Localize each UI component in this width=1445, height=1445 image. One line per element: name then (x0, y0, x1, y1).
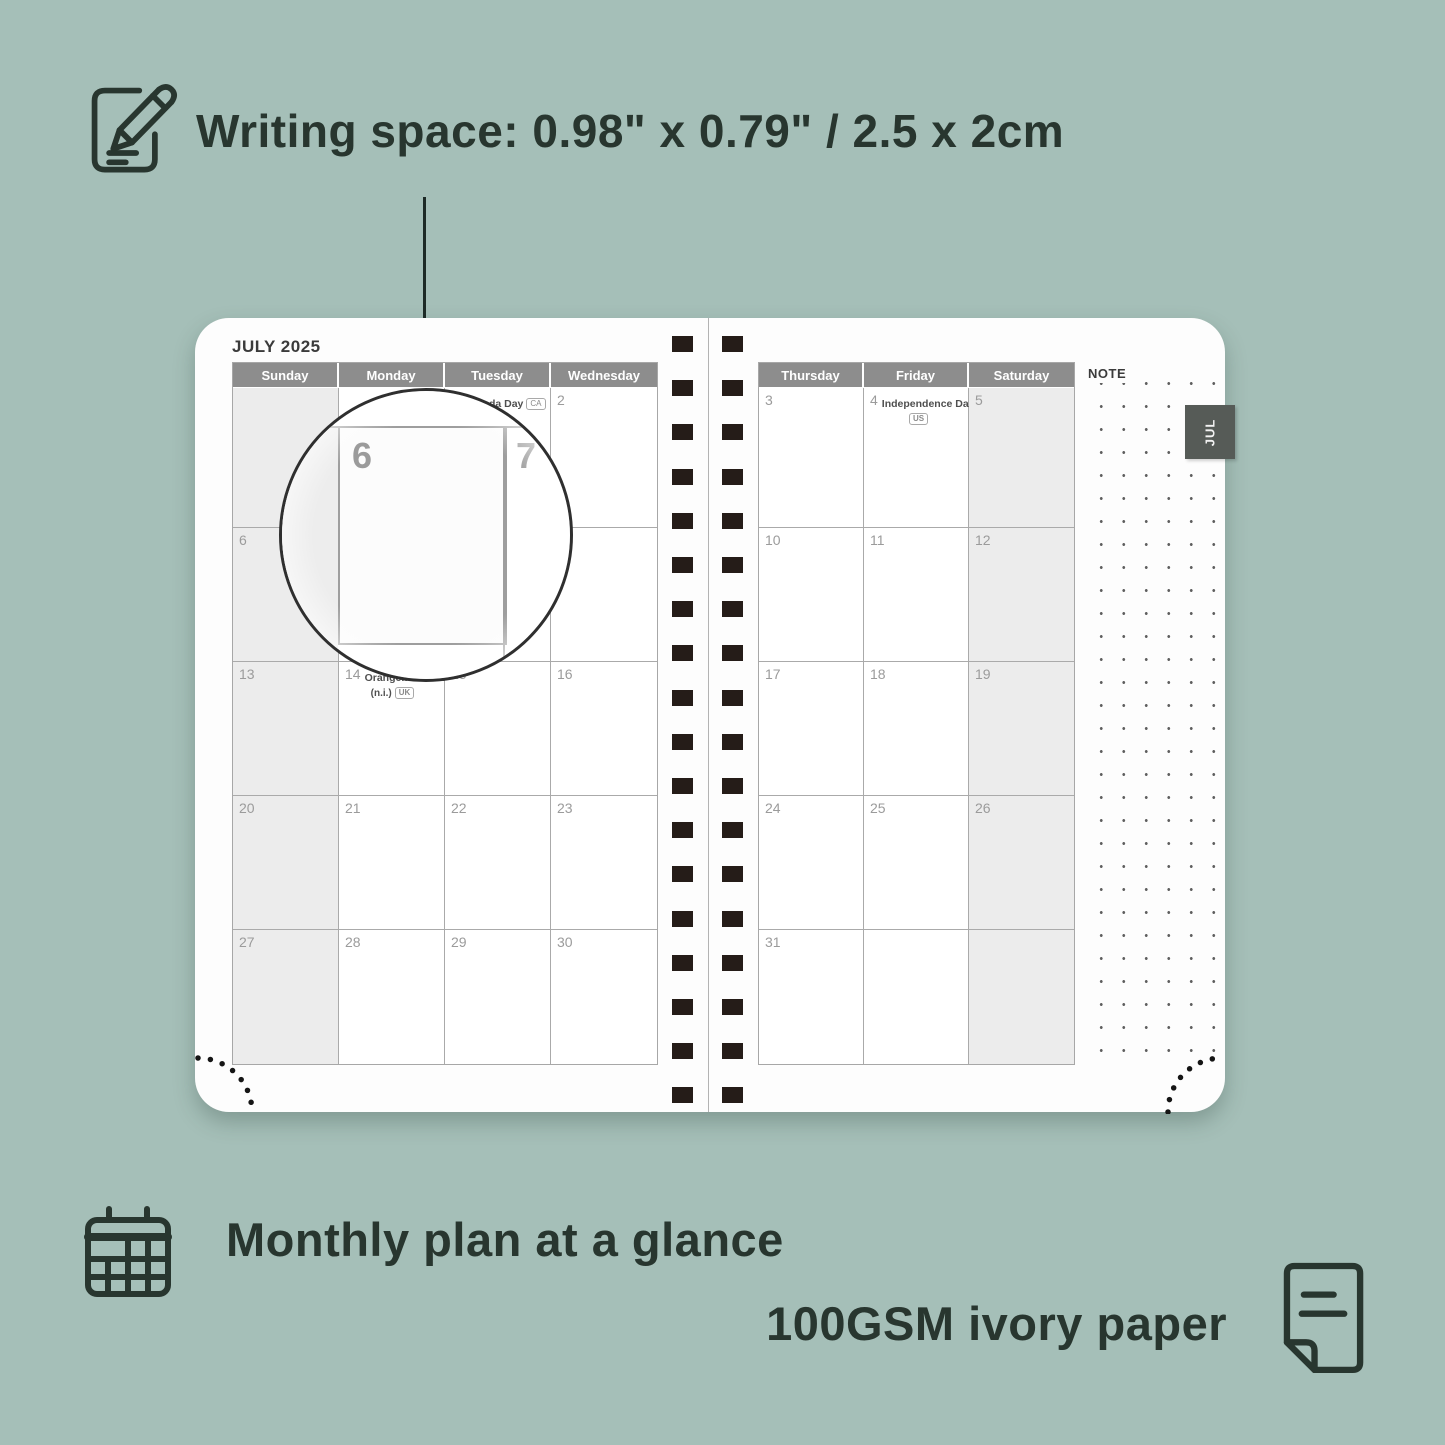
date-number: 14 (345, 666, 361, 682)
holiday-badge-line: US (870, 413, 964, 425)
calendar-cell: 14Orangemen's Day(n.i.)UK (339, 662, 445, 796)
date-number: 10 (765, 532, 781, 548)
writing-space-text: Writing space: 0.98" x 0.79" / 2.5 x 2cm (196, 104, 1064, 158)
planner-spread: JULY 2025 SundayMondayTuesdayWednesday1C… (195, 318, 1225, 1112)
binding-hole (722, 557, 743, 573)
magnifier-circle: 6 7 (279, 388, 573, 682)
date-number: 24 (765, 800, 781, 816)
month-tab-jul: JUL (1185, 405, 1235, 459)
paper-sheet-icon (1270, 1258, 1376, 1380)
month-tab-label: JUL (1203, 418, 1218, 446)
month-title: JULY 2025 (232, 337, 321, 357)
calendar-cell: 3 (759, 388, 864, 528)
calendar-cell: 22 (445, 796, 551, 930)
calendar-cell: 12 (969, 528, 1074, 662)
calendar-cell: 29 (445, 930, 551, 1064)
binding-hole (672, 424, 693, 440)
binding-hole (722, 822, 743, 838)
binding-hole (722, 1087, 743, 1103)
binding-hole (672, 734, 693, 750)
magnifier-glow (282, 391, 570, 679)
calendar-cell: 16 (551, 662, 657, 796)
day-header: Tuesday (445, 363, 551, 388)
calendar-cell: 13 (233, 662, 339, 796)
binding-hole (672, 911, 693, 927)
day-header: Thursday (759, 363, 864, 388)
country-badge: UK (395, 687, 415, 699)
binding-hole (722, 734, 743, 750)
paper-spec-text: 100GSM ivory paper (766, 1296, 1227, 1351)
calendar-cell: 26 (969, 796, 1074, 930)
product-infographic: Writing space: 0.98" x 0.79" / 2.5 x 2cm… (0, 0, 1445, 1445)
calendar-cell: 4Independence DayUS (864, 388, 969, 528)
calendar-grid-right: ThursdayFridaySaturday34Independence Day… (758, 362, 1075, 1065)
binding-hole (722, 645, 743, 661)
date-number: 25 (870, 800, 886, 816)
calendar-cell: 31 (759, 930, 864, 1064)
calendar-cell: 28 (339, 930, 445, 1064)
binding-hole (672, 601, 693, 617)
binding-hole (672, 557, 693, 573)
calendar-cell: 30 (551, 930, 657, 1064)
date-number: 31 (765, 934, 781, 950)
binding-hole (672, 866, 693, 882)
calendar-cell: 23 (551, 796, 657, 930)
date-number: 22 (451, 800, 467, 816)
binding-hole (672, 955, 693, 971)
date-number: 3 (765, 392, 773, 408)
calendar-cell (864, 930, 969, 1064)
country-badge: CA (526, 398, 545, 410)
date-number: 27 (239, 934, 255, 950)
calendar-cell: 24 (759, 796, 864, 930)
binding-hole (722, 778, 743, 794)
calendar-cell: 15 (445, 662, 551, 796)
day-header: Monday (339, 363, 445, 388)
day-header: Wednesday (551, 363, 657, 388)
binding-hole (672, 778, 693, 794)
calendar-cell: 17 (759, 662, 864, 796)
binding-hole (722, 690, 743, 706)
day-header: Sunday (233, 363, 339, 388)
binding-hole (722, 424, 743, 440)
date-number: 4 (870, 392, 878, 408)
calendar-cell: 18 (864, 662, 969, 796)
note-label: NOTE (1088, 366, 1132, 383)
calendar-cell: 27 (233, 930, 339, 1064)
date-number: 17 (765, 666, 781, 682)
binding-hole (672, 822, 693, 838)
pencil-note-icon (80, 76, 184, 180)
date-number: 26 (975, 800, 991, 816)
date-number: 20 (239, 800, 255, 816)
holiday-name: Independence Day (882, 394, 975, 412)
calendar-cell: 21 (339, 796, 445, 930)
date-number: 18 (870, 666, 886, 682)
binding-hole (722, 469, 743, 485)
date-number: 12 (975, 532, 991, 548)
calendar-cell (969, 930, 1074, 1064)
binding-hole (722, 513, 743, 529)
calendar-cell: 5 (969, 388, 1074, 528)
monthly-plan-text: Monthly plan at a glance (226, 1212, 784, 1267)
binding-hole (672, 1087, 693, 1103)
perforation-dots-right (1161, 1048, 1227, 1114)
calendar-cell: 20 (233, 796, 339, 930)
binding-hole (672, 380, 693, 396)
binding-hole (672, 1043, 693, 1059)
calendar-icon (78, 1204, 178, 1304)
binding-hole (672, 645, 693, 661)
date-number: 28 (345, 934, 361, 950)
holiday-badge-line: (n.i.)UK (345, 687, 440, 699)
binding-hole (722, 866, 743, 882)
page-gutter-line (708, 318, 709, 1112)
calendar-cell: 10 (759, 528, 864, 662)
date-number: 13 (239, 666, 255, 682)
country-badge: US (909, 413, 928, 425)
date-number: 19 (975, 666, 991, 682)
binding-hole (672, 690, 693, 706)
binding-hole (672, 513, 693, 529)
binding-hole (722, 955, 743, 971)
binding-hole (722, 380, 743, 396)
binding-hole (722, 601, 743, 617)
calendar-cell: 25 (864, 796, 969, 930)
day-header: Friday (864, 363, 969, 388)
date-number: 21 (345, 800, 361, 816)
calendar-cell: 19 (969, 662, 1074, 796)
binding-hole (722, 911, 743, 927)
date-number: 5 (975, 392, 983, 408)
date-number: 23 (557, 800, 573, 816)
binding-hole (672, 999, 693, 1015)
day-header: Saturday (969, 363, 1074, 388)
date-number: 29 (451, 934, 467, 950)
calendar-cell: 11 (864, 528, 969, 662)
binding-hole (722, 999, 743, 1015)
date-number: 16 (557, 666, 573, 682)
date-number: 6 (239, 532, 247, 548)
binding-hole (722, 1043, 743, 1059)
perforation-dots-left (193, 1048, 259, 1114)
binding-hole (722, 336, 743, 352)
date-number: 30 (557, 934, 573, 950)
date-number: 11 (870, 532, 885, 548)
date-number: 2 (557, 392, 565, 408)
binding-hole (672, 469, 693, 485)
binding-hole (672, 336, 693, 352)
note-dot-grid (1088, 366, 1218, 1066)
